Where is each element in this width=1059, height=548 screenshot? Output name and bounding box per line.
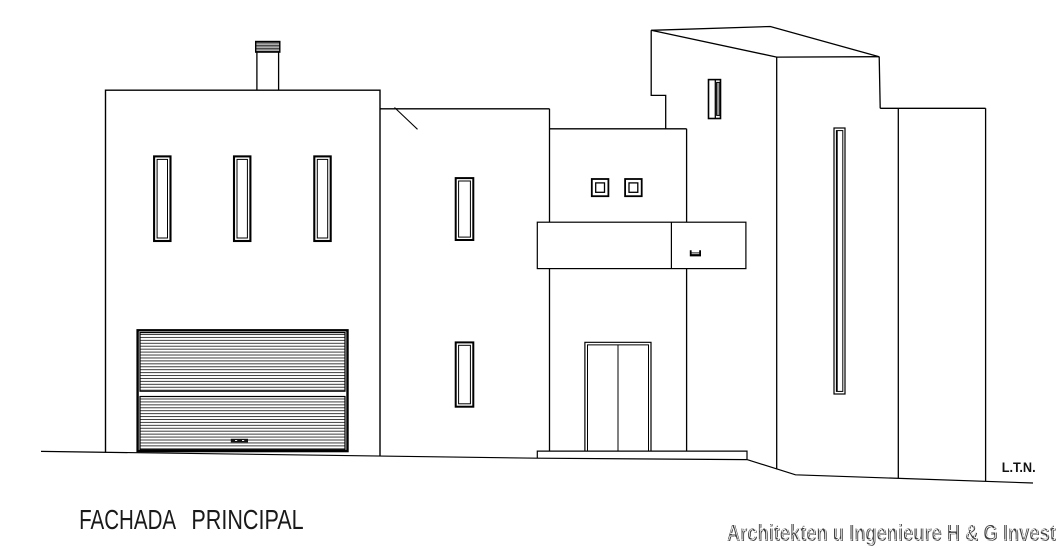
- svg-text:L.T.N.: L.T.N.: [1002, 459, 1036, 475]
- svg-text:FACHADA: FACHADA: [79, 504, 176, 535]
- svg-text:Architekten u Ingenieure H &: Architekten u Ingenieure H & G Invest: [726, 519, 1055, 545]
- svg-text:PRINCIPAL: PRINCIPAL: [191, 504, 303, 535]
